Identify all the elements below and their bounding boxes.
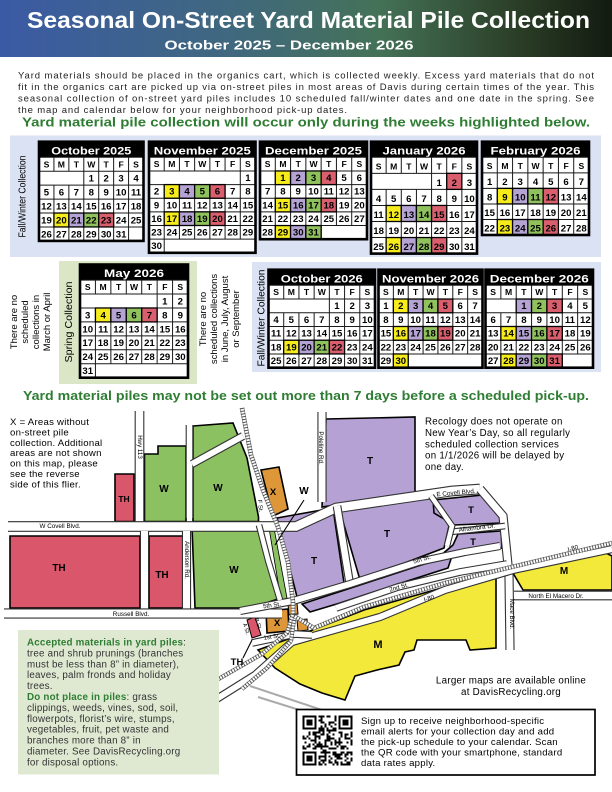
svg-text:12: 12 — [339, 187, 350, 198]
svg-text:18: 18 — [182, 214, 193, 225]
svg-text:8: 8 — [280, 187, 286, 198]
svg-text:October 2026: October 2026 — [281, 273, 363, 285]
svg-text:14: 14 — [419, 210, 430, 221]
svg-text:23: 23 — [101, 215, 112, 226]
svg-text:T: T — [470, 537, 476, 548]
svg-text:seasonal collection of on-stre: seasonal collection of on-street yard pi… — [18, 94, 594, 105]
svg-text:20: 20 — [561, 208, 572, 219]
svg-text:15: 15 — [86, 201, 97, 212]
svg-text:12: 12 — [113, 324, 124, 335]
svg-text:11: 11 — [324, 187, 335, 198]
svg-text:6: 6 — [357, 173, 362, 184]
svg-text:20: 20 — [212, 214, 223, 225]
svg-text:26: 26 — [41, 229, 52, 240]
svg-text:30: 30 — [347, 356, 358, 367]
svg-text:12: 12 — [388, 210, 399, 221]
svg-text:16: 16 — [449, 210, 460, 221]
svg-text:22: 22 — [381, 342, 392, 353]
svg-text:4: 4 — [100, 310, 106, 321]
svg-text:Accepted materials in yard pil: Accepted materials in yard piles: — [27, 638, 186, 649]
svg-text:W: W — [299, 486, 309, 497]
svg-text:10: 10 — [410, 315, 421, 326]
svg-text:29: 29 — [86, 229, 97, 240]
svg-text:Fall/Winter Collection: Fall/Winter Collection — [18, 155, 29, 237]
svg-text:T: T — [311, 556, 317, 567]
svg-text:24: 24 — [464, 226, 475, 237]
svg-text:W: W — [420, 162, 429, 172]
svg-text:TH: TH — [155, 570, 168, 581]
svg-text:11: 11 — [98, 324, 109, 335]
svg-text:T: T — [116, 282, 122, 292]
svg-text:18: 18 — [565, 329, 576, 340]
svg-text:31: 31 — [464, 242, 475, 253]
svg-text:28: 28 — [470, 342, 481, 353]
svg-text:26: 26 — [286, 356, 297, 367]
svg-text:27: 27 — [129, 352, 140, 363]
svg-text:17: 17 — [515, 208, 526, 219]
svg-text:17: 17 — [410, 329, 421, 340]
svg-text:19: 19 — [440, 329, 451, 340]
svg-text:28: 28 — [262, 228, 273, 239]
svg-text:13: 13 — [455, 315, 466, 326]
svg-text:T: T — [304, 287, 310, 297]
svg-text:8: 8 — [162, 310, 168, 321]
svg-text:29: 29 — [381, 356, 392, 367]
svg-text:S: S — [582, 287, 588, 297]
svg-text:25: 25 — [530, 223, 541, 234]
svg-text:3: 3 — [552, 301, 557, 312]
svg-text:2: 2 — [502, 177, 507, 188]
svg-text:24: 24 — [116, 215, 127, 226]
svg-text:S: S — [490, 287, 496, 297]
svg-text:W: W — [87, 159, 96, 169]
svg-text:20: 20 — [301, 342, 312, 353]
svg-text:tree and shrub prunings (branc: tree and shrub prunings (branches — [27, 648, 183, 659]
svg-text:17: 17 — [549, 329, 560, 340]
svg-text:TH: TH — [52, 563, 65, 574]
svg-text:2: 2 — [452, 178, 457, 189]
svg-text:11: 11 — [425, 315, 436, 326]
svg-text:Anderson Rd.: Anderson Rd. — [183, 541, 190, 579]
svg-text:2: 2 — [154, 187, 159, 198]
svg-text:M: M — [505, 287, 512, 297]
svg-text:1: 1 — [89, 174, 95, 185]
svg-text:Sign up to receive neighborhoo: Sign up to receive neighborhood-specific — [361, 716, 544, 727]
svg-text:on this map, please: on this map, please — [10, 459, 98, 470]
svg-text:T: T — [437, 162, 443, 172]
svg-text:12: 12 — [545, 192, 556, 203]
svg-text:16: 16 — [347, 329, 358, 340]
svg-text:11: 11 — [373, 210, 384, 221]
svg-text:15: 15 — [243, 200, 254, 211]
svg-text:19: 19 — [339, 200, 350, 211]
svg-text:30: 30 — [395, 356, 406, 367]
svg-text:26: 26 — [113, 352, 124, 363]
svg-text:18: 18 — [271, 342, 282, 353]
svg-text:scheduled collections: scheduled collections — [209, 274, 220, 365]
svg-text:29: 29 — [332, 356, 343, 367]
svg-text:S: S — [376, 162, 382, 172]
svg-text:5: 5 — [116, 310, 122, 321]
svg-text:19: 19 — [41, 215, 52, 226]
svg-text:TH: TH — [118, 494, 129, 504]
svg-text:February 2026: February 2026 — [491, 145, 581, 157]
svg-text:23: 23 — [449, 226, 460, 237]
svg-text:3: 3 — [518, 177, 523, 188]
svg-text:7: 7 — [147, 310, 152, 321]
svg-text:November 2026: November 2026 — [382, 273, 479, 285]
svg-text:7: 7 — [506, 315, 511, 326]
svg-text:T: T — [184, 159, 190, 169]
svg-text:4: 4 — [184, 187, 190, 198]
svg-text:the QR code with your smartpho: the QR code with your smartphone, standa… — [361, 748, 562, 759]
svg-text:14: 14 — [262, 200, 273, 211]
svg-text:21: 21 — [576, 208, 587, 219]
svg-text:15: 15 — [519, 329, 530, 340]
svg-text:28: 28 — [144, 352, 155, 363]
svg-text:clippings, weeds, vines, sod,: clippings, weeds, vines, sod, soil, — [27, 703, 178, 714]
svg-text:24: 24 — [362, 342, 373, 353]
svg-text:23: 23 — [500, 223, 511, 234]
svg-text:19: 19 — [197, 214, 208, 225]
svg-text:T: T — [104, 159, 110, 169]
svg-text:T: T — [384, 529, 390, 540]
svg-text:F St.: F St. — [256, 499, 263, 512]
svg-text:Yard material pile collection: Yard material pile collection will occur… — [22, 115, 590, 130]
svg-text:18: 18 — [323, 200, 334, 211]
svg-text:6: 6 — [458, 301, 463, 312]
svg-text:13: 13 — [488, 329, 499, 340]
svg-text:8: 8 — [334, 315, 340, 326]
svg-text:26: 26 — [580, 342, 591, 353]
svg-text:19: 19 — [286, 342, 297, 353]
svg-text:31: 31 — [82, 366, 93, 377]
svg-text:8: 8 — [521, 315, 527, 326]
svg-text:Do not place in piles: grass: Do not place in piles: grass — [27, 692, 157, 703]
svg-text:S: S — [154, 159, 160, 169]
svg-text:13: 13 — [56, 201, 67, 212]
svg-text:T: T — [215, 159, 221, 169]
svg-text:15: 15 — [332, 329, 343, 340]
svg-text:16: 16 — [151, 214, 162, 225]
svg-text:M: M — [58, 159, 65, 169]
svg-text:29: 29 — [243, 228, 254, 239]
svg-text:F: F — [458, 287, 463, 297]
svg-text:4: 4 — [273, 315, 279, 326]
svg-text:or September: or September — [231, 290, 242, 348]
svg-text:11: 11 — [565, 315, 576, 326]
svg-text:5: 5 — [200, 187, 206, 198]
svg-text:19: 19 — [388, 226, 399, 237]
svg-text:20: 20 — [488, 342, 499, 353]
svg-text:27: 27 — [561, 223, 572, 234]
svg-text:22: 22 — [278, 214, 289, 225]
svg-text:9: 9 — [502, 192, 507, 203]
svg-text:16: 16 — [101, 201, 112, 212]
svg-text:10: 10 — [166, 200, 177, 211]
svg-text:12: 12 — [580, 315, 591, 326]
svg-text:areas are not shown: areas are not shown — [10, 448, 102, 459]
svg-text:T: T — [443, 287, 449, 297]
svg-text:diameter. See DavisRecycling.o: diameter. See DavisRecycling.org — [27, 747, 180, 758]
svg-text:W: W — [229, 565, 239, 576]
svg-text:X: X — [274, 618, 281, 629]
svg-text:on-street pile: on-street pile — [10, 427, 69, 438]
svg-text:Poleline Rd.: Poleline Rd. — [317, 431, 324, 465]
svg-text:22: 22 — [434, 226, 445, 237]
svg-text:T: T — [413, 287, 419, 297]
svg-text:27: 27 — [301, 356, 312, 367]
svg-text:14: 14 — [576, 192, 587, 203]
svg-text:11: 11 — [131, 187, 142, 198]
svg-text:28: 28 — [227, 228, 238, 239]
svg-text:see the reverse: see the reverse — [10, 469, 80, 480]
svg-text:18: 18 — [98, 338, 109, 349]
svg-text:F: F — [350, 287, 355, 297]
svg-text:W: W — [318, 287, 327, 297]
svg-text:Yard materials should be place: Yard materials should be placed in the o… — [18, 71, 594, 82]
svg-text:must be less than 8” in diamet: must be less than 8” in diameter), — [27, 659, 179, 670]
svg-text:scheduled collection services: scheduled collection services — [425, 439, 559, 450]
svg-text:5: 5 — [548, 177, 554, 188]
svg-text:20: 20 — [56, 215, 67, 226]
svg-text:22: 22 — [243, 214, 254, 225]
svg-text:28: 28 — [503, 356, 514, 367]
svg-text:21: 21 — [503, 342, 514, 353]
svg-text:S: S — [265, 159, 271, 169]
svg-text:in June, July, August: in June, July, August — [220, 275, 231, 362]
svg-text:24: 24 — [549, 342, 560, 353]
svg-text:North El Macero Dr.: North El Macero Dr. — [528, 593, 584, 600]
svg-text:W: W — [213, 483, 223, 494]
svg-text:F: F — [162, 282, 167, 292]
svg-text:S: S — [356, 159, 362, 169]
svg-text:Spring Collection: Spring Collection — [64, 281, 75, 362]
svg-text:1: 1 — [487, 177, 493, 188]
svg-text:6: 6 — [59, 187, 64, 198]
svg-text:M: M — [560, 566, 568, 577]
svg-text:15: 15 — [160, 324, 171, 335]
svg-text:S: S — [245, 159, 251, 169]
svg-text:18: 18 — [131, 201, 142, 212]
svg-text:17: 17 — [82, 338, 93, 349]
svg-text:W: W — [309, 159, 318, 169]
svg-text:W: W — [426, 287, 435, 297]
svg-text:29: 29 — [519, 356, 530, 367]
svg-text:28: 28 — [419, 242, 430, 253]
svg-text:30: 30 — [534, 356, 545, 367]
svg-text:4: 4 — [133, 174, 139, 185]
svg-text:7: 7 — [579, 177, 584, 188]
svg-text:17: 17 — [464, 210, 475, 221]
svg-text:F: F — [230, 159, 235, 169]
svg-text:26: 26 — [197, 228, 208, 239]
svg-text:24: 24 — [82, 352, 93, 363]
svg-text:4: 4 — [376, 194, 382, 205]
svg-text:9: 9 — [178, 310, 183, 321]
svg-text:23: 23 — [293, 214, 304, 225]
svg-text:2: 2 — [296, 173, 301, 184]
svg-text:25: 25 — [373, 242, 384, 253]
svg-text:22: 22 — [86, 215, 97, 226]
svg-text:22: 22 — [484, 223, 495, 234]
svg-text:21: 21 — [227, 214, 238, 225]
svg-text:8: 8 — [245, 187, 251, 198]
svg-text:15: 15 — [484, 208, 495, 219]
svg-text:at DavisRecycling.org: at DavisRecycling.org — [461, 687, 561, 698]
svg-text:16: 16 — [500, 208, 511, 219]
svg-text:collection. Additional: collection. Additional — [10, 438, 102, 449]
svg-text:12: 12 — [286, 329, 297, 340]
svg-text:13: 13 — [561, 192, 572, 203]
svg-text:There are no: There are no — [198, 292, 209, 346]
svg-text:6: 6 — [563, 177, 568, 188]
svg-text:X: X — [270, 487, 277, 498]
svg-text:M: M — [373, 639, 382, 651]
svg-text:T: T — [518, 161, 524, 171]
svg-text:3: 3 — [365, 301, 370, 312]
svg-text:20: 20 — [404, 226, 415, 237]
svg-text:12: 12 — [197, 200, 208, 211]
svg-text:30: 30 — [293, 228, 304, 239]
svg-text:18: 18 — [373, 226, 384, 237]
svg-text:T: T — [468, 505, 474, 516]
svg-text:2: 2 — [537, 301, 542, 312]
svg-text:22: 22 — [519, 342, 530, 353]
svg-text:2: 2 — [104, 174, 109, 185]
svg-text:M: M — [100, 282, 107, 292]
svg-text:28: 28 — [316, 356, 327, 367]
svg-text:27: 27 — [354, 214, 365, 225]
svg-text:T: T — [296, 159, 302, 169]
svg-text:9: 9 — [537, 315, 542, 326]
svg-text:26: 26 — [388, 242, 399, 253]
svg-text:29: 29 — [160, 352, 171, 363]
svg-text:3: 3 — [169, 187, 174, 198]
svg-text:18: 18 — [425, 329, 436, 340]
svg-text:F: F — [567, 287, 572, 297]
svg-text:1: 1 — [245, 173, 251, 184]
svg-text:Recology does not operate on: Recology does not operate on — [425, 417, 563, 428]
svg-text:December 2025: December 2025 — [265, 145, 362, 157]
svg-text:11: 11 — [271, 329, 282, 340]
svg-text:21: 21 — [419, 226, 430, 237]
svg-text:14: 14 — [470, 315, 481, 326]
svg-text:25: 25 — [131, 215, 142, 226]
svg-text:28: 28 — [71, 229, 82, 240]
svg-text:W: W — [535, 287, 544, 297]
svg-text:2: 2 — [398, 301, 403, 312]
svg-text:2: 2 — [350, 301, 355, 312]
svg-text:9: 9 — [350, 315, 355, 326]
svg-text:16: 16 — [395, 329, 406, 340]
svg-text:T: T — [548, 161, 554, 171]
svg-text:22: 22 — [160, 338, 171, 349]
svg-text:5: 5 — [341, 173, 347, 184]
svg-text:14: 14 — [227, 200, 238, 211]
svg-text:12: 12 — [41, 201, 52, 212]
svg-text:Fall/Winter Collection: Fall/Winter Collection — [257, 269, 268, 366]
svg-text:23: 23 — [175, 338, 186, 349]
svg-text:13: 13 — [404, 210, 415, 221]
svg-text:20: 20 — [129, 338, 140, 349]
svg-text:27: 27 — [56, 229, 67, 240]
svg-text:30: 30 — [175, 352, 186, 363]
svg-text:13: 13 — [301, 329, 312, 340]
svg-text:7: 7 — [74, 187, 79, 198]
svg-text:4: 4 — [533, 177, 539, 188]
svg-text:13: 13 — [212, 200, 223, 211]
svg-text:5: 5 — [391, 194, 397, 205]
svg-text:7: 7 — [265, 187, 270, 198]
svg-text:trees.: trees. — [27, 681, 53, 692]
svg-text:13: 13 — [354, 187, 365, 198]
svg-text:31: 31 — [308, 228, 319, 239]
svg-text:M: M — [397, 287, 404, 297]
svg-text:9: 9 — [154, 200, 159, 211]
svg-text:S: S — [472, 287, 478, 297]
svg-text:29: 29 — [434, 242, 445, 253]
svg-text:10: 10 — [82, 324, 93, 335]
svg-text:10: 10 — [362, 315, 373, 326]
svg-text:14: 14 — [316, 329, 327, 340]
svg-text:28: 28 — [576, 223, 587, 234]
svg-text:10: 10 — [515, 192, 526, 203]
svg-text:leaves, palm fronds and holida: leaves, palm fronds and holiday — [27, 670, 171, 681]
svg-text:20: 20 — [354, 200, 365, 211]
svg-text:6: 6 — [491, 315, 496, 326]
svg-text:25: 25 — [98, 352, 109, 363]
svg-text:27: 27 — [404, 242, 415, 253]
svg-text:5: 5 — [289, 315, 295, 326]
svg-text:31: 31 — [549, 356, 560, 367]
svg-text:W Covell Blvd.: W Covell Blvd. — [40, 523, 81, 530]
svg-text:S: S — [578, 161, 584, 171]
svg-text:1: 1 — [521, 301, 527, 312]
svg-text:7: 7 — [230, 187, 235, 198]
svg-text:S: S — [133, 159, 139, 169]
svg-text:25: 25 — [271, 356, 282, 367]
svg-text:December 2026: December 2026 — [490, 273, 589, 285]
svg-text:15: 15 — [434, 210, 445, 221]
svg-text:7: 7 — [421, 194, 426, 205]
svg-text:S: S — [85, 282, 91, 292]
svg-text:24: 24 — [308, 214, 319, 225]
svg-text:31: 31 — [362, 356, 373, 367]
svg-text:May 2026: May 2026 — [104, 268, 164, 280]
svg-text:T: T — [552, 287, 558, 297]
svg-text:TH: TH — [231, 657, 244, 668]
svg-text:7: 7 — [472, 301, 477, 312]
svg-text:S: S — [177, 282, 183, 292]
svg-text:flowerpots, florist’s wire, st: flowerpots, florist’s wire, stumps, — [27, 714, 175, 725]
svg-text:26: 26 — [440, 342, 451, 353]
svg-text:17: 17 — [116, 201, 127, 212]
svg-text:X = Areas without: X = Areas without — [10, 417, 89, 428]
svg-text:10: 10 — [549, 315, 560, 326]
svg-text:14: 14 — [71, 201, 82, 212]
svg-text:3: 3 — [85, 310, 90, 321]
svg-text:March or April: March or April — [42, 293, 53, 352]
svg-text:20: 20 — [455, 329, 466, 340]
svg-text:T: T — [326, 159, 332, 169]
svg-text:19: 19 — [113, 338, 124, 349]
svg-text:17: 17 — [166, 214, 177, 225]
svg-text:3: 3 — [413, 301, 418, 312]
svg-text:26: 26 — [339, 214, 350, 225]
svg-text:3: 3 — [311, 173, 316, 184]
svg-text:3: 3 — [467, 178, 472, 189]
